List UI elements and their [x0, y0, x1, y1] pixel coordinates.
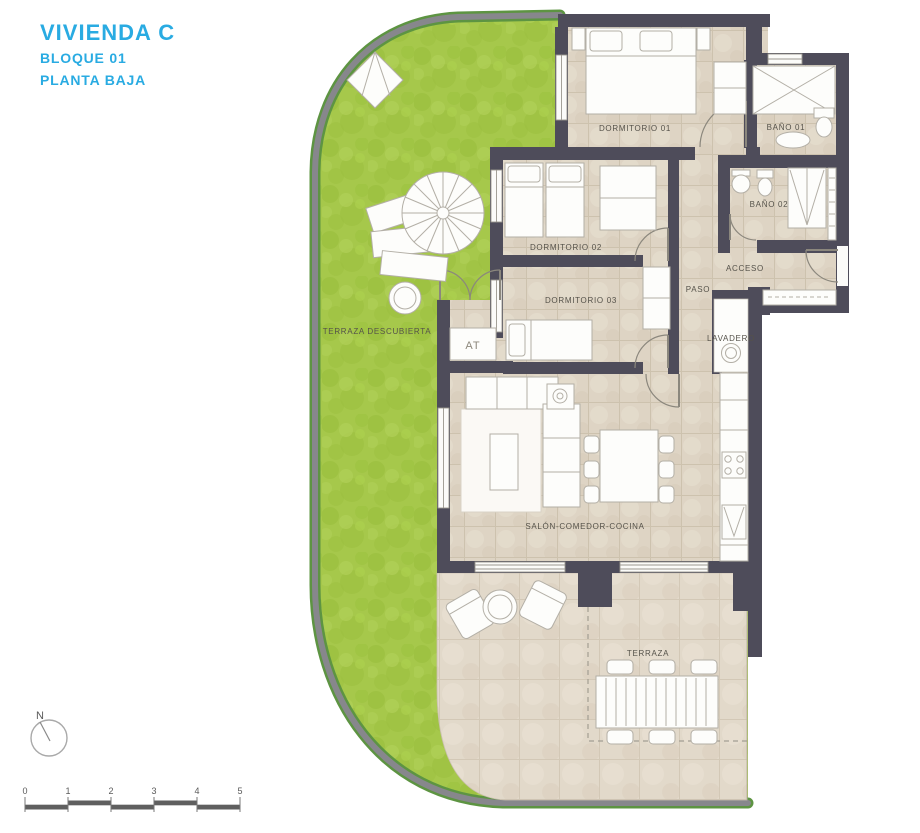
nightstand-icon — [572, 28, 585, 50]
shower-bano01-icon — [753, 66, 835, 114]
kitchen-sink-icon — [722, 505, 746, 539]
scale-tick-0: 0 — [22, 786, 27, 796]
label-dormitorio01: DORMITORIO 01 — [599, 124, 671, 133]
scale-bar: 0 1 2 3 4 5 — [22, 786, 242, 812]
terrace-table-icon — [596, 660, 718, 744]
scale-tick-3: 3 — [151, 786, 156, 796]
label-at: AT — [465, 340, 480, 352]
wardrobe-dormitorio03-icon — [643, 267, 670, 329]
label-lavadero: LAVADERO — [707, 334, 755, 343]
scale-tick-4: 4 — [194, 786, 199, 796]
wardrobe-dormitorio01-icon — [714, 62, 746, 114]
label-dormitorio02: DORMITORIO 02 — [530, 243, 602, 252]
hob-icon — [722, 452, 746, 478]
window-dormitorio01 — [556, 55, 567, 120]
entrance-opening — [837, 246, 848, 286]
coffee-table-icon — [490, 434, 518, 490]
closet-acceso-icon — [763, 290, 836, 305]
label-terraza-descubierta: TERRAZA DESCUBIERTA — [323, 327, 432, 336]
scale-tick-1: 1 — [65, 786, 70, 796]
floor-plan-page: VIVIENDA C BLOQUE 01 PLANTA BAJA — [0, 0, 920, 833]
north-arrow: N — [31, 710, 67, 756]
single-bed-icon — [506, 320, 592, 360]
toilet-bano02-icon — [757, 170, 773, 196]
sink-bano01-icon — [776, 132, 810, 148]
dining-table-icon — [584, 430, 674, 503]
label-terraza: TERRAZA — [627, 649, 669, 658]
floor-plan-svg: DORMITORIO 01 BAÑO 01 BAÑO 02 ACCESO PAS… — [0, 0, 920, 833]
wardrobe-dormitorio02-icon — [600, 166, 656, 230]
label-paso: PASO — [686, 285, 710, 294]
shower-bano02-icon — [788, 168, 826, 228]
label-dormitorio03: DORMITORIO 03 — [545, 296, 617, 305]
sink-bano02-icon — [732, 170, 750, 193]
sliding-door-salon-left — [475, 562, 565, 572]
toilet-bano01-icon — [814, 108, 834, 137]
window-bano01 — [768, 54, 802, 64]
north-label: N — [36, 710, 44, 722]
sliding-door-salon-right — [620, 562, 708, 572]
label-bano01: BAÑO 01 — [767, 123, 806, 132]
double-bed-icon — [572, 28, 710, 114]
duct-shaft — [828, 168, 836, 240]
nightstand-icon — [697, 28, 710, 50]
garden-table-icon — [389, 282, 421, 314]
scale-tick-5: 5 — [237, 786, 242, 796]
kitchen-counter-icon — [720, 373, 748, 561]
window-dormitorio02 — [491, 170, 502, 222]
label-acceso: ACCESO — [726, 264, 764, 273]
label-salon: SALÓN-COMEDOR-COCINA — [525, 522, 644, 531]
side-table-icon — [547, 384, 574, 409]
label-bano02: BAÑO 02 — [750, 200, 789, 209]
scale-tick-2: 2 — [108, 786, 113, 796]
window-salon-left — [438, 408, 449, 508]
